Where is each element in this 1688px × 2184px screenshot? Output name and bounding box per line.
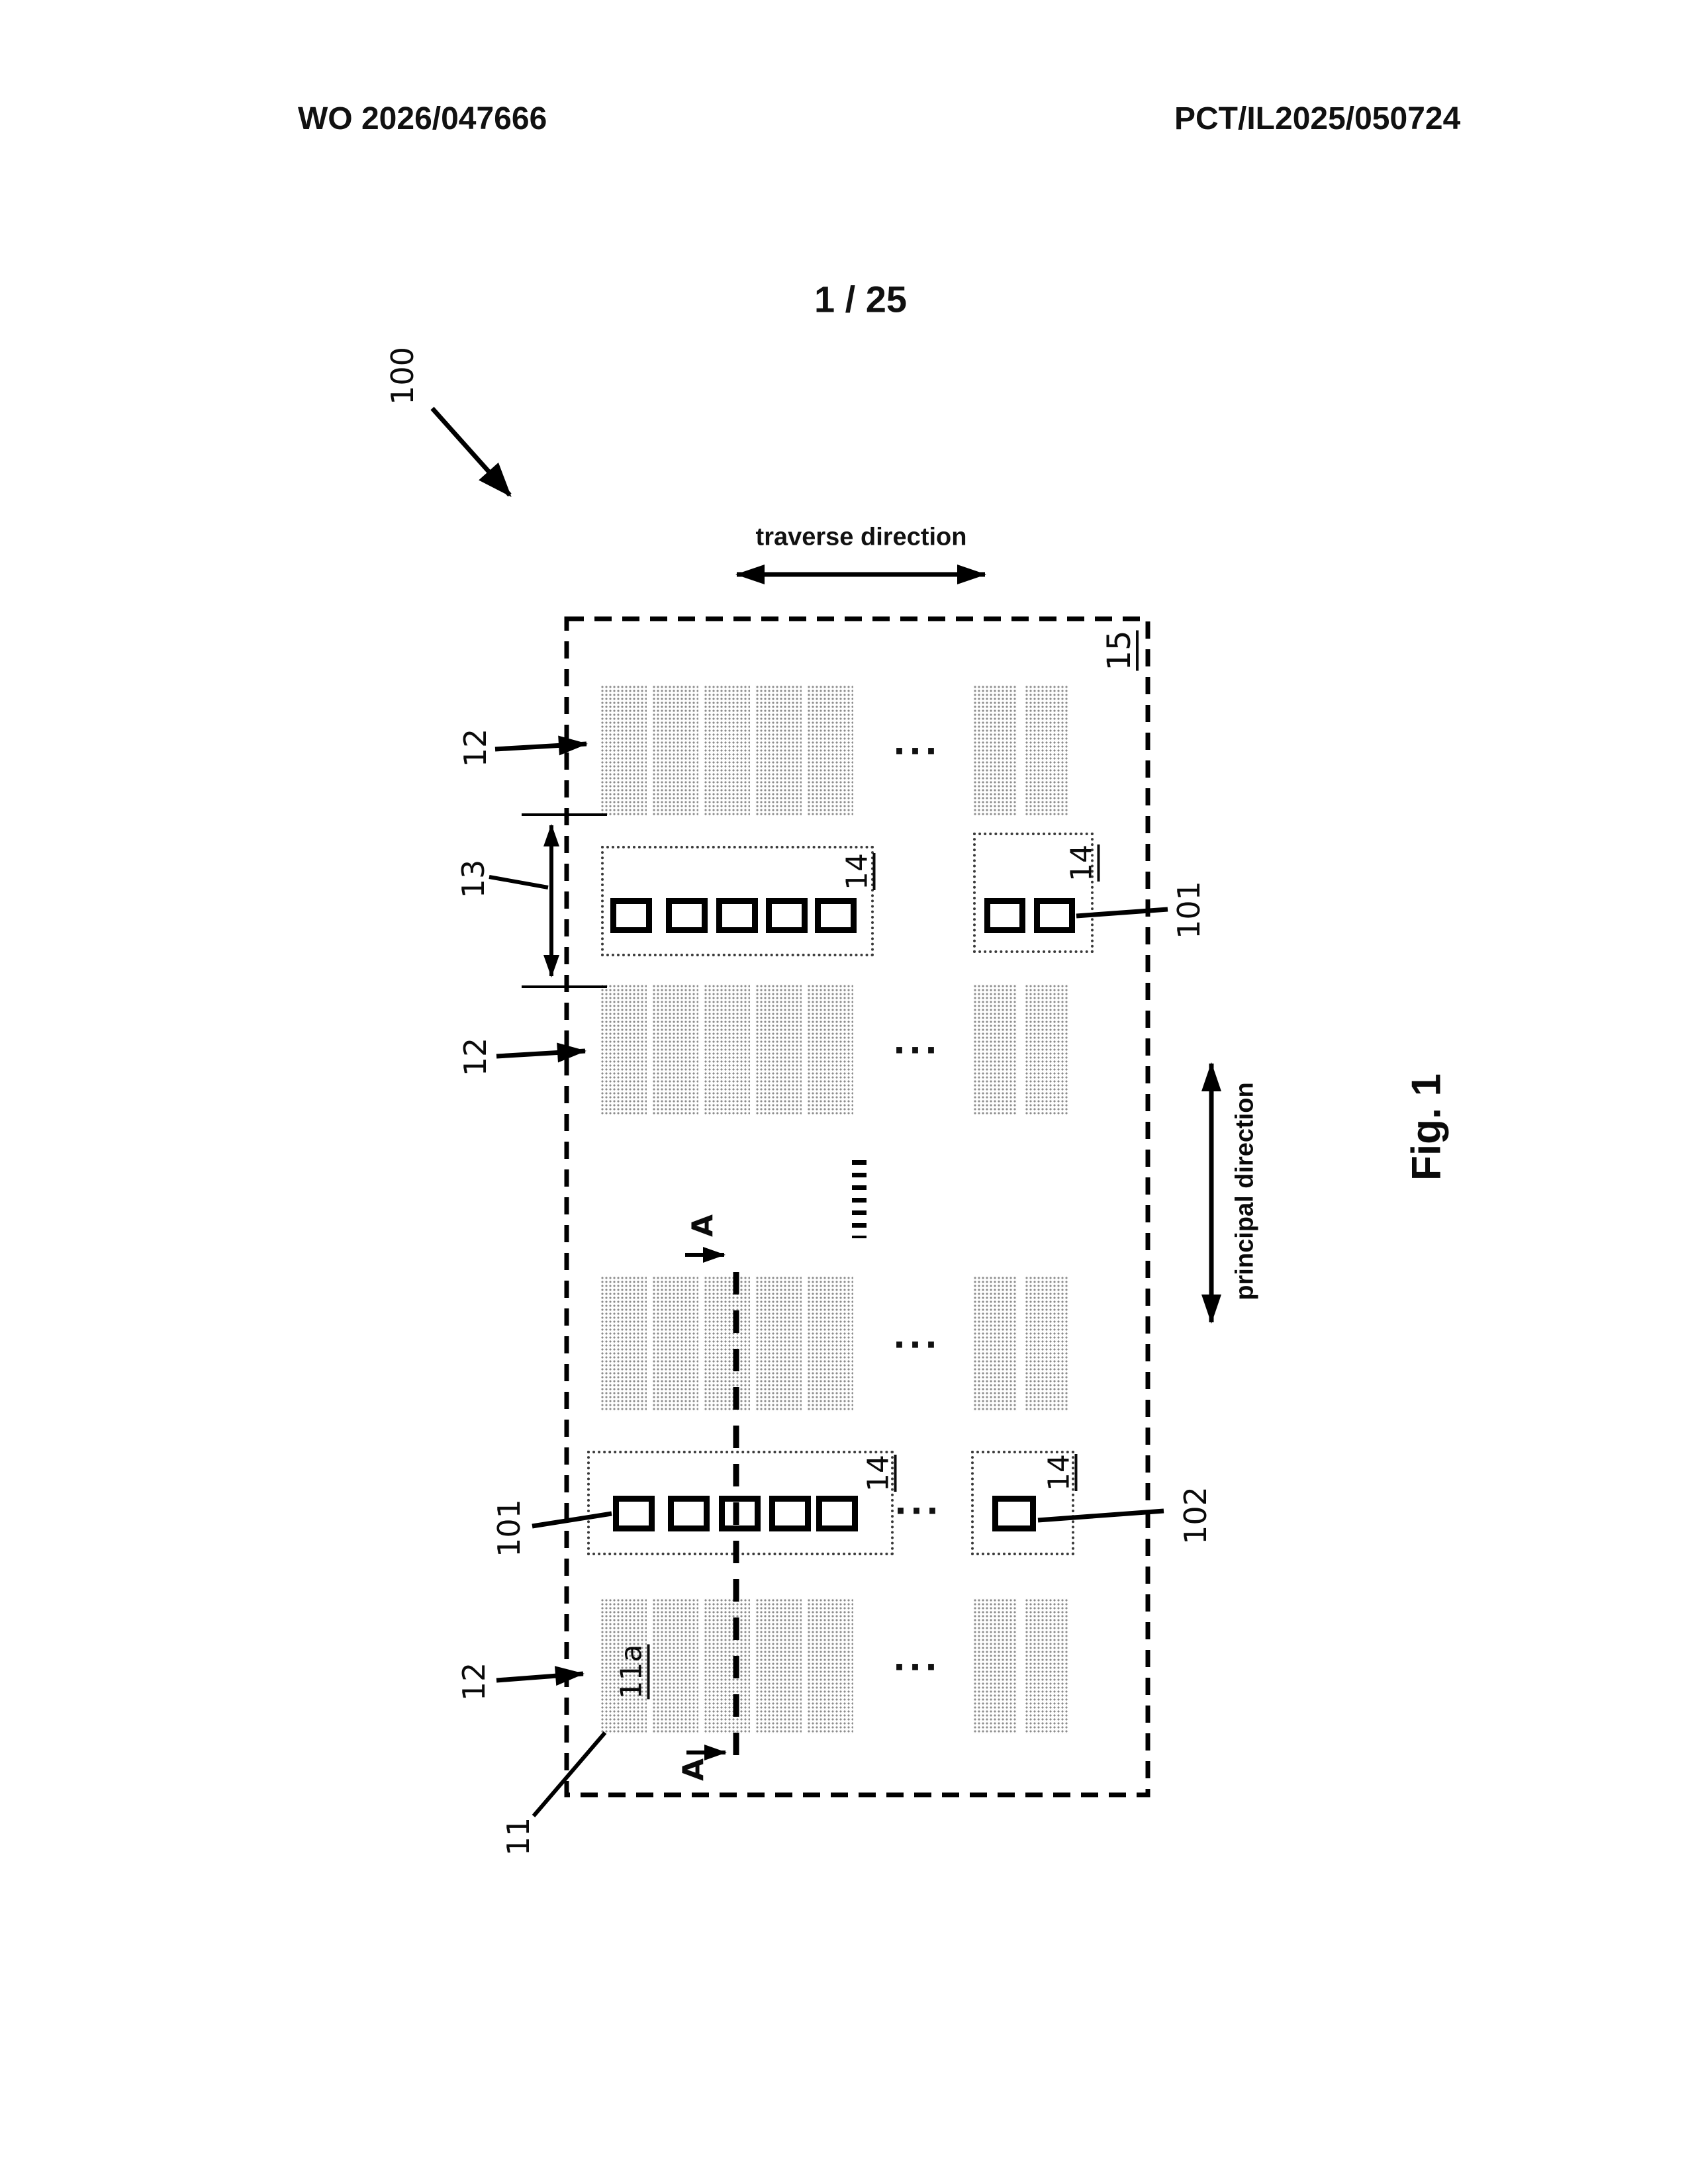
- pointer-100: [432, 408, 510, 495]
- leader-102: [1038, 1511, 1164, 1520]
- pointer-12-first: [495, 744, 586, 749]
- panel-outline: [567, 619, 1148, 1795]
- leader-13: [489, 877, 548, 887]
- leader-11: [534, 1733, 605, 1816]
- pointer-12-third: [496, 1674, 583, 1680]
- pointer-12-second: [496, 1051, 585, 1056]
- annotation-lines: [0, 0, 1688, 2184]
- leader-101-bottom: [532, 1514, 612, 1526]
- leader-101-top: [1076, 909, 1168, 916]
- patent-drawing-sheet: WO 2026/047666 PCT/IL2025/050724 1 / 25 …: [0, 0, 1688, 2184]
